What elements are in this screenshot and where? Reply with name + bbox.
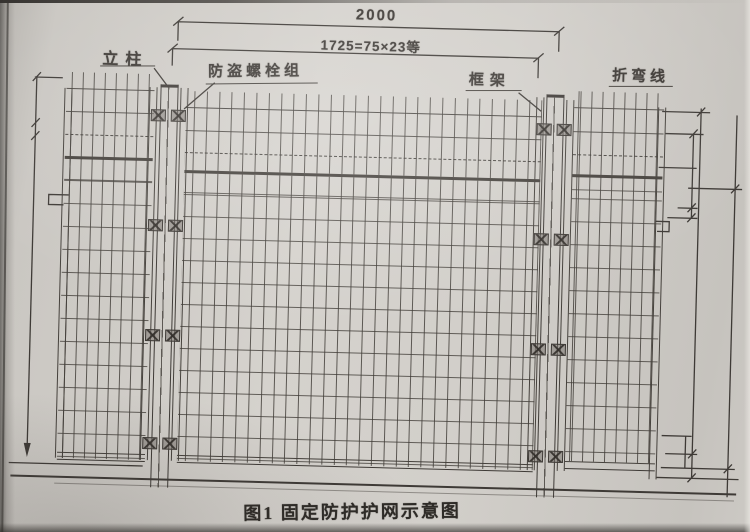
leader-post: [154, 68, 169, 87]
right-dimension-line-b: [727, 115, 737, 497]
dimension-text-2000: 2000: [341, 6, 411, 25]
figure-caption: 图1 固定防护护网示意图: [212, 496, 492, 525]
leader-frame: [518, 93, 541, 112]
left-dimension-line: [27, 77, 37, 449]
page-bottom-shadow: [0, 523, 750, 532]
page-right-highlight: [744, 0, 750, 532]
right-break-mark: [655, 221, 669, 231]
right-dimension-line-short: [685, 134, 694, 468]
label-frame: 框架: [469, 68, 512, 90]
page-top-edge-line: [0, 0, 750, 3]
scanned-figure-page: 2000 1725=75×23等 立柱 防盗螺栓组 框架 折弯线 图1 固定防护…: [0, 0, 750, 532]
leader-bolt-group: [184, 82, 215, 110]
scan-content: 2000 1725=75×23等 立柱 防盗螺栓组 框架 折弯线: [0, 0, 750, 532]
label-bend-line: 折弯线: [612, 64, 670, 86]
left-break-mark: [48, 194, 68, 205]
left-dimension-arrow: [23, 443, 30, 457]
label-anti-theft-bolt-group: 防盗螺栓组: [208, 59, 303, 81]
